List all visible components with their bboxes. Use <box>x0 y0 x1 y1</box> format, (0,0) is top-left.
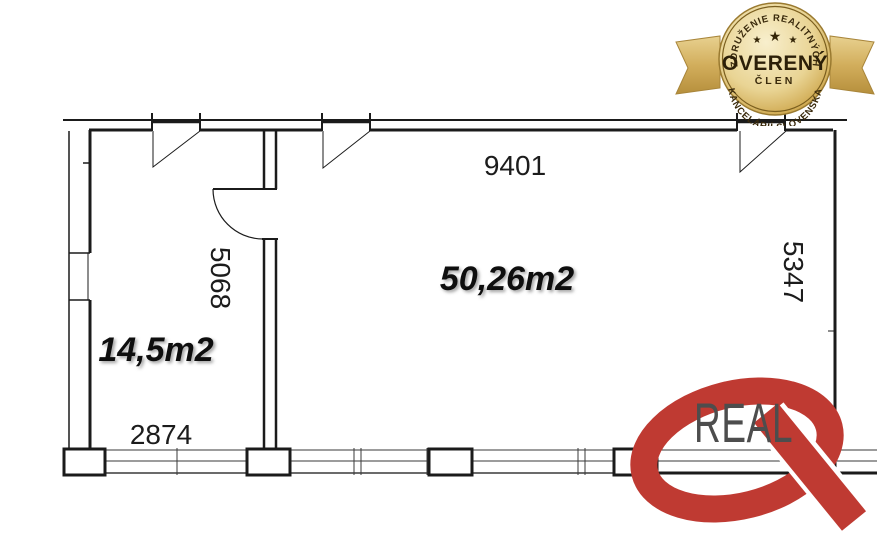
dimension-bottom-width: 2874 <box>130 421 192 449</box>
svg-text:★: ★ <box>769 29 782 45</box>
left-wall <box>69 130 90 449</box>
pillar <box>247 449 290 475</box>
pillar <box>429 449 472 475</box>
badge-ribbon-right <box>830 36 874 94</box>
dividing-wall <box>264 130 276 449</box>
badge-subtitle: ČLEN <box>755 74 796 87</box>
dimension-top-width: 9401 <box>484 152 546 180</box>
badge-title: OVERENÝ <box>722 51 828 75</box>
dimension-left-height: 5068 <box>206 247 234 309</box>
pillar <box>64 449 105 475</box>
room-area-label-small: 14,5m2 <box>98 333 213 367</box>
logo-real-text: REAL <box>694 395 793 451</box>
verified-member-badge: ZDRUŽENIE REALITNÝCH KANCELÁRIÍ SLOVENSK… <box>668 0 877 126</box>
svg-text:★: ★ <box>789 35 798 46</box>
room-area-label-large: 50,26m2 <box>440 262 574 296</box>
badge-ribbon-left <box>676 36 720 94</box>
floor-plan-page: 9401 5068 5347 2874 14,5m2 50,26m2 REAL <box>0 0 877 540</box>
svg-text:★: ★ <box>753 35 762 46</box>
door-symbol <box>213 189 278 239</box>
dimension-right-height: 5347 <box>779 241 807 303</box>
